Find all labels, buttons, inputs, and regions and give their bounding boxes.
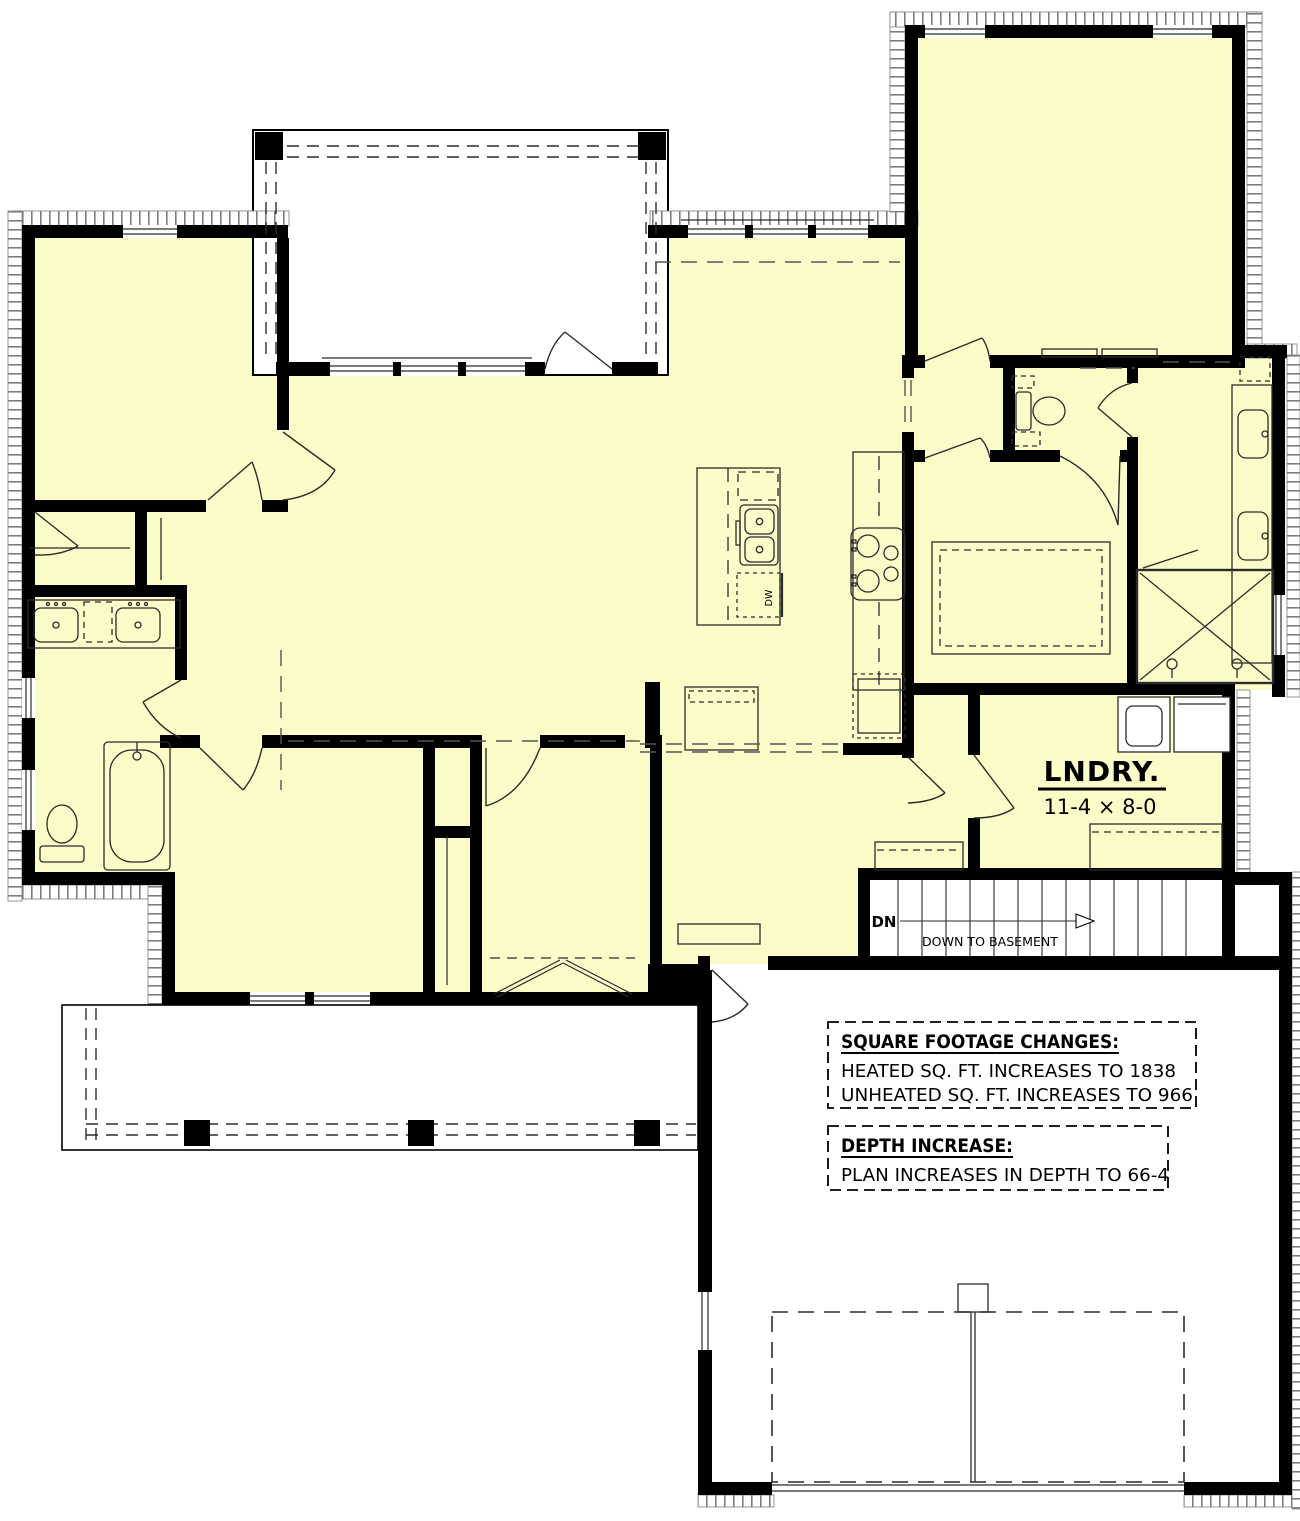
window-master-top (118, 225, 182, 238)
garage (772, 1284, 1184, 1491)
porch-post (638, 132, 666, 160)
window-bigroom-right (1153, 25, 1212, 38)
porch-post (184, 1120, 210, 1146)
laundry-dims: 11-4 × 8-0 (1044, 795, 1157, 819)
laundry-label: LNDRY. (1044, 755, 1161, 788)
note-boxes: SQUARE FOOTAGE CHANGES: HEATED SQ. FT. I… (828, 1022, 1196, 1190)
garage-slab-dashed (772, 1312, 1184, 1482)
window-bath-left-1 (22, 678, 35, 718)
window-bigroom-left (925, 25, 985, 38)
garage-post-footing (958, 1284, 988, 1312)
stairs-dn-label: DN (871, 913, 896, 931)
front-porch-floor (253, 130, 668, 375)
utility-sink-icon (1118, 697, 1170, 752)
window-bath-left-2 (22, 770, 35, 830)
floor-plan-page: LNDRY. 11-4 × 8-0 DN DOWN TO BASEMENT DW… (0, 0, 1300, 1521)
door-garage-entry (712, 970, 748, 1022)
sqft-note-title: SQUARE FOOTAGE CHANGES: (841, 1031, 1119, 1053)
sqft-note-line1: HEATED SQ. FT. INCREASES TO 1838 (841, 1061, 1176, 1082)
rear-porch (62, 1005, 698, 1150)
sqft-note-line2: UNHEATED SQ. FT. INCREASES TO 966 (841, 1085, 1193, 1106)
depth-note-line1: PLAN INCREASES IN DEPTH TO 66-4 (841, 1165, 1169, 1186)
porch-post (408, 1120, 434, 1146)
window-garage (698, 1292, 712, 1350)
floor-plan-drawing: LNDRY. 11-4 × 8-0 DN DOWN TO BASEMENT DW… (0, 0, 1300, 1521)
porch-post (634, 1120, 660, 1146)
depth-note-title: DEPTH INCREASE: (841, 1135, 1013, 1157)
stairs-description: DOWN TO BASEMENT (922, 935, 1059, 949)
garage-door (772, 1485, 1184, 1491)
washer-icon (1174, 697, 1230, 752)
dishwasher-label: DW (764, 589, 775, 606)
porch-post (255, 132, 283, 160)
